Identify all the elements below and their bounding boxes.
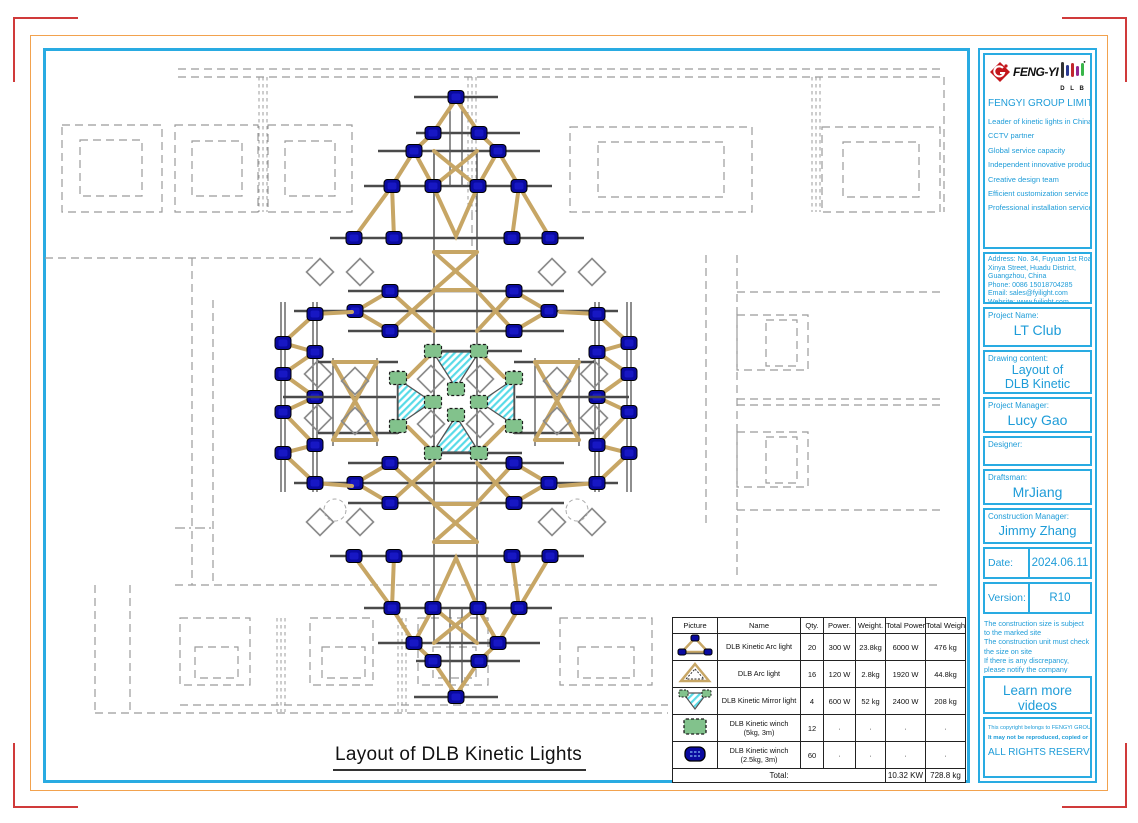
company-feature: Leader of kinetic lights in China	[988, 115, 1087, 129]
item-power: 300 W	[824, 634, 856, 661]
table-total-row: Total: 10.32 KW 728.8 kg	[673, 769, 966, 783]
copyright-line2: It may not be reproduced, copied or dele…	[988, 735, 1087, 741]
col-picture: Picture	[673, 618, 718, 634]
fengyi-logo-text: FENG-YI	[1013, 65, 1058, 79]
cad-drawing	[0, 0, 1138, 823]
col-power: Power.	[824, 618, 856, 634]
arc-light-icon	[673, 661, 718, 688]
item-total-weight: 208 kg	[926, 688, 966, 715]
bom-header-row: Picture Name Qty. Power. Weight. Total P…	[673, 618, 966, 634]
date-section: Date: 2024.06.11	[983, 547, 1092, 579]
designer-label: Designer:	[988, 440, 1087, 449]
table-row: DLB Kinetic winch(2.5kg, 3m) 60 · · · ·	[673, 742, 966, 769]
col-name: Name	[718, 618, 801, 634]
total-label: Total:	[673, 769, 886, 783]
item-total-weight: 44.8kg	[926, 661, 966, 688]
project-name-value: LT Club	[988, 322, 1087, 338]
table-row: DLB Kinetic Mirror light 4 600 W 52 kg 2…	[673, 688, 966, 715]
item-qty: 20	[801, 634, 824, 661]
construction-manager-section: Construction Manager: Jimmy Zhang	[983, 508, 1092, 544]
address-line: Email: sales@fyilight.com	[988, 290, 1087, 299]
total-power-value: 10.32 KW	[886, 769, 926, 783]
item-name: DLB Kinetic winch(2.5kg, 3m)	[718, 742, 801, 769]
project-manager-section: Project Manager: Lucy Gao	[983, 397, 1092, 433]
table-row: DLB Kinetic winch(5kg, 3m) 12 · · · ·	[673, 715, 966, 742]
kinetic-arc-light-icon	[673, 634, 718, 661]
address-line: Address: No. 34, Fuyuan 1st Road,	[988, 256, 1087, 265]
fengyi-logo-icon	[989, 61, 1011, 83]
bom-table: Picture Name Qty. Power. Weight. Total P…	[672, 617, 966, 783]
item-power: 120 W	[824, 661, 856, 688]
draftsman-label: Draftsman:	[988, 473, 1087, 482]
col-total-weight: Total Weight.	[926, 618, 966, 634]
sheet-title: Layout of DLB Kinetic Lights	[333, 744, 586, 771]
item-weight: ·	[856, 742, 886, 769]
copyright-line3: ALL RIGHTS RESERVED.	[988, 747, 1087, 758]
kinetic-mirror-light-icon	[673, 688, 718, 715]
company-feature: Professional installation service	[988, 201, 1087, 215]
item-power: ·	[824, 715, 856, 742]
dlb-logo-icon	[1060, 61, 1086, 81]
table-row: DLB Arc light 16 120 W 2.8kg 1920 W 44.8…	[673, 661, 966, 688]
item-total-power: ·	[886, 742, 926, 769]
item-total-weight: ·	[926, 715, 966, 742]
item-total-weight: ·	[926, 742, 966, 769]
notes-section: The construction size is subject to the …	[983, 617, 1092, 673]
item-qty: 12	[801, 715, 824, 742]
address-line: Guangzhou, China	[988, 273, 1087, 282]
drawing-sheet: Layout of DLB Kinetic Lights Picture Nam…	[0, 0, 1138, 823]
draftsman-value: MrJiang	[988, 484, 1087, 500]
company-feature: Efficient customization service	[988, 187, 1087, 201]
dlb-logo-text: D L B	[1060, 86, 1086, 92]
copyright-line1: This copyright belongs to FENGYI GROUP L…	[988, 725, 1087, 731]
side-wing	[275, 302, 352, 521]
item-name: DLB Kinetic Mirror light	[718, 688, 801, 715]
item-total-power: ·	[886, 715, 926, 742]
construction-manager-value: Jimmy Zhang	[988, 523, 1087, 538]
note-line: The construction unit must check the siz…	[984, 637, 1091, 655]
item-weight: 23.8kg	[856, 634, 886, 661]
item-total-power: 1920 W	[886, 661, 926, 688]
total-weight-value: 728.8 kg	[926, 769, 966, 783]
kinetic-winch-5kg-icon	[673, 715, 718, 742]
drawing-content-section: Drawing content: Layout of DLB Kinetic L…	[983, 350, 1092, 394]
center-band	[283, 345, 629, 460]
address-section: Address: No. 34, Fuyuan 1st Road, Xinya …	[983, 252, 1092, 304]
item-qty: 16	[801, 661, 824, 688]
item-weight: 2.8kg	[856, 661, 886, 688]
table-row: DLB Kinetic Arc light 20 300 W 23.8kg 60…	[673, 634, 966, 661]
copyright-section: This copyright belongs to FENGYI GROUP L…	[983, 717, 1092, 778]
col-weight: Weight.	[856, 618, 886, 634]
address-line: Website: www.fyilight.com	[988, 299, 1087, 304]
company-feature: Creative design team	[988, 173, 1087, 187]
item-total-power: 2400 W	[886, 688, 926, 715]
address-line: Xinya Street, Huadu District,	[988, 265, 1087, 274]
company-feature: Global service capacity	[988, 144, 1087, 158]
kinetic-winch-2.5kg-icon	[673, 742, 718, 769]
date-label: Date:	[985, 549, 1030, 577]
item-name: DLB Kinetic winch(5kg, 3m)	[718, 715, 801, 742]
item-total-weight: 476 kg	[926, 634, 966, 661]
draftsman-section: Draftsman: MrJiang	[983, 469, 1092, 505]
item-power: 600 W	[824, 688, 856, 715]
item-power: ·	[824, 742, 856, 769]
item-name: DLB Arc light	[718, 661, 801, 688]
address-line: Phone: 0086 15018704285	[988, 282, 1087, 291]
drawing-content-line1: Layout of	[988, 363, 1087, 377]
videos-title: Learn more videos	[988, 683, 1087, 713]
construction-manager-label: Construction Manager:	[988, 512, 1087, 521]
col-qty: Qty.	[801, 618, 824, 634]
version-label: Version:	[985, 584, 1030, 612]
date-value: 2024.06.11	[1030, 549, 1090, 577]
company-name: FENGYI GROUP LIMITED	[988, 98, 1087, 109]
item-qty: 4	[801, 688, 824, 715]
note-line: If there is any discrepancy, please noti…	[984, 656, 1091, 673]
videos-section: Learn more videos https://vimeo.com/user…	[983, 676, 1092, 714]
drawing-content-label: Drawing content:	[988, 354, 1087, 363]
project-name-section: Project Name: LT Club	[983, 307, 1092, 347]
project-manager-label: Project Manager:	[988, 401, 1087, 410]
drawing-content-line2: DLB Kinetic Lights	[988, 377, 1087, 394]
company-section: FENG-YI D L B FENGYI GROUP LIMITED Leade…	[983, 53, 1092, 249]
col-total-power: Total Power	[886, 618, 926, 634]
item-total-power: 6000 W	[886, 634, 926, 661]
designer-section: Designer:	[983, 436, 1092, 466]
title-block: FENG-YI D L B FENGYI GROUP LIMITED Leade…	[978, 48, 1097, 783]
item-qty: 60	[801, 742, 824, 769]
item-weight: ·	[856, 715, 886, 742]
version-section: Version: R10	[983, 582, 1092, 614]
project-manager-value: Lucy Gao	[988, 412, 1087, 428]
version-value: R10	[1030, 584, 1090, 612]
item-weight: 52 kg	[856, 688, 886, 715]
note-line: The construction size is subject to the …	[984, 619, 1091, 637]
item-name: DLB Kinetic Arc light	[718, 634, 801, 661]
company-feature: CCTV partner	[988, 129, 1087, 143]
company-feature: Independent innovative products	[988, 158, 1087, 172]
project-name-label: Project Name:	[988, 311, 1087, 320]
